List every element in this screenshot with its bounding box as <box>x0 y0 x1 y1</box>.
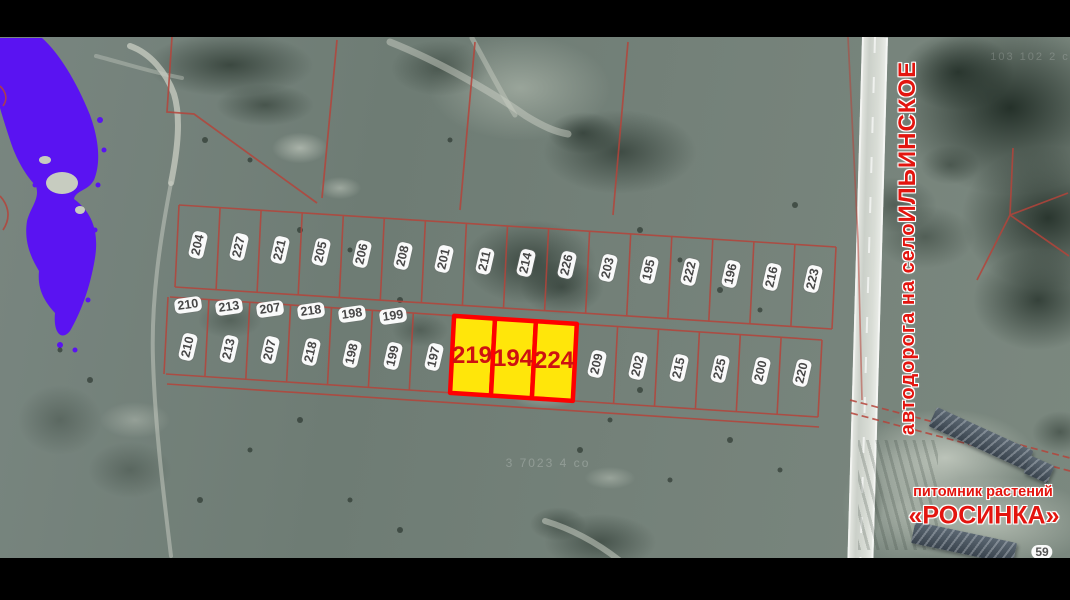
plot-label-bottom-197: 197 <box>423 343 444 373</box>
watermark-center: 3 7023 4 со <box>506 456 591 470</box>
bottom-letterbox-bar <box>0 558 1070 600</box>
plot-label-bottom-209: 209 <box>587 349 608 379</box>
plot-label-top-205: 205 <box>310 237 331 267</box>
plot-label-bottom-210: 210 <box>178 332 199 362</box>
plot-label-header-218: 218 <box>297 302 326 321</box>
plot-label-bottom-225: 225 <box>709 355 730 385</box>
highlighted-plot-label-224: 224 <box>534 347 574 375</box>
map-badge-59: 59 <box>1031 545 1052 559</box>
plot-label-bottom-198: 198 <box>342 339 363 369</box>
top-letterbox-bar <box>0 0 1070 37</box>
plot-label-bottom-199: 199 <box>382 341 403 371</box>
plot-label-top-203: 203 <box>598 253 619 283</box>
nursery-label-line1: питомник растений <box>913 484 1053 500</box>
plot-label-bottom-202: 202 <box>628 351 649 381</box>
plot-label-header-213: 213 <box>215 298 244 317</box>
plot-label-top-201: 201 <box>434 244 455 274</box>
highlighted-plot-label-219: 219 <box>452 342 492 370</box>
plot-label-bottom-218: 218 <box>301 337 322 367</box>
plot-label-top-204: 204 <box>187 230 208 260</box>
plot-label-header-207: 207 <box>256 300 285 319</box>
plot-label-header-199: 199 <box>378 306 407 325</box>
plot-label-bottom-220: 220 <box>791 358 812 388</box>
plot-label-top-221: 221 <box>269 235 290 265</box>
highlighted-plot-label-194: 194 <box>493 345 533 373</box>
plot-label-top-195: 195 <box>639 255 660 285</box>
watermark-top-right: 103 102 2 с <box>990 51 1070 63</box>
plot-label-header-210: 210 <box>174 296 203 315</box>
plot-label-bottom-215: 215 <box>669 353 690 383</box>
plot-label-header-198: 198 <box>338 304 367 323</box>
plot-label-bottom-207: 207 <box>260 336 281 366</box>
plot-label-top-223: 223 <box>803 264 824 294</box>
plot-label-top-214: 214 <box>516 248 537 278</box>
plot-label-bottom-200: 200 <box>750 356 771 386</box>
plot-label-top-222: 222 <box>680 257 701 287</box>
plot-label-top-196: 196 <box>721 260 742 290</box>
plot-label-top-211: 211 <box>475 246 496 275</box>
map-screenshot: 2191942242042272212052062082012112142262… <box>0 0 1070 600</box>
plot-label-bottom-213: 213 <box>219 334 240 364</box>
plot-label-top-227: 227 <box>228 233 249 263</box>
plot-label-top-208: 208 <box>393 242 414 272</box>
plot-label-top-216: 216 <box>762 262 783 292</box>
plot-label-top-226: 226 <box>557 251 578 281</box>
plot-label-top-206: 206 <box>351 239 372 269</box>
nursery-label-line2: «РОСИНКА» <box>909 502 1060 531</box>
